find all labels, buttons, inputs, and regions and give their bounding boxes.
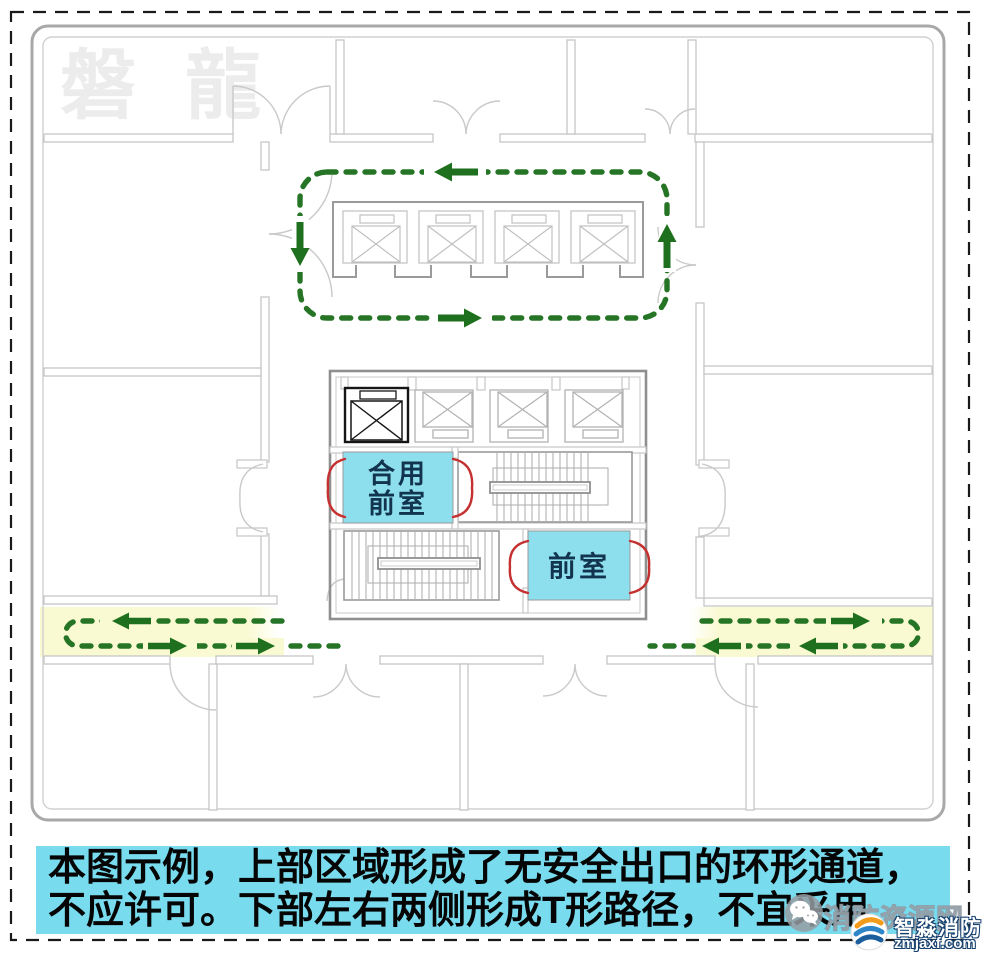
floor-plan: 磐 龍: [0, 0, 986, 955]
combined-lobby-label-line2: 前室: [368, 488, 428, 519]
stair-upper: [458, 452, 632, 522]
elevator-shaft: [343, 211, 635, 263]
stair-lower: [344, 531, 499, 600]
lobby-room: 前室: [528, 531, 630, 600]
screenshot-root: 磐 龍: [0, 0, 986, 955]
elevator-bank: [333, 202, 643, 277]
elevator-shaft: [415, 390, 623, 442]
wechat-icon: [784, 893, 824, 933]
partition-walls: [44, 40, 932, 810]
caption-line-1: 本图示例，上部区域形成了无安全出口的环形通道，: [48, 847, 950, 890]
combined-lobby-label-line1: 合用: [368, 458, 428, 489]
building-outline-inner: [43, 37, 933, 809]
combined-lobby-room: 合用 前室: [343, 452, 453, 523]
brand-logo-icon: [850, 913, 888, 951]
brand-domain: zmjaxf.com: [894, 935, 976, 952]
building-outline-outer: [32, 26, 944, 820]
lobby-label: 前室: [548, 550, 610, 582]
firefighter-elevator: [345, 388, 408, 442]
